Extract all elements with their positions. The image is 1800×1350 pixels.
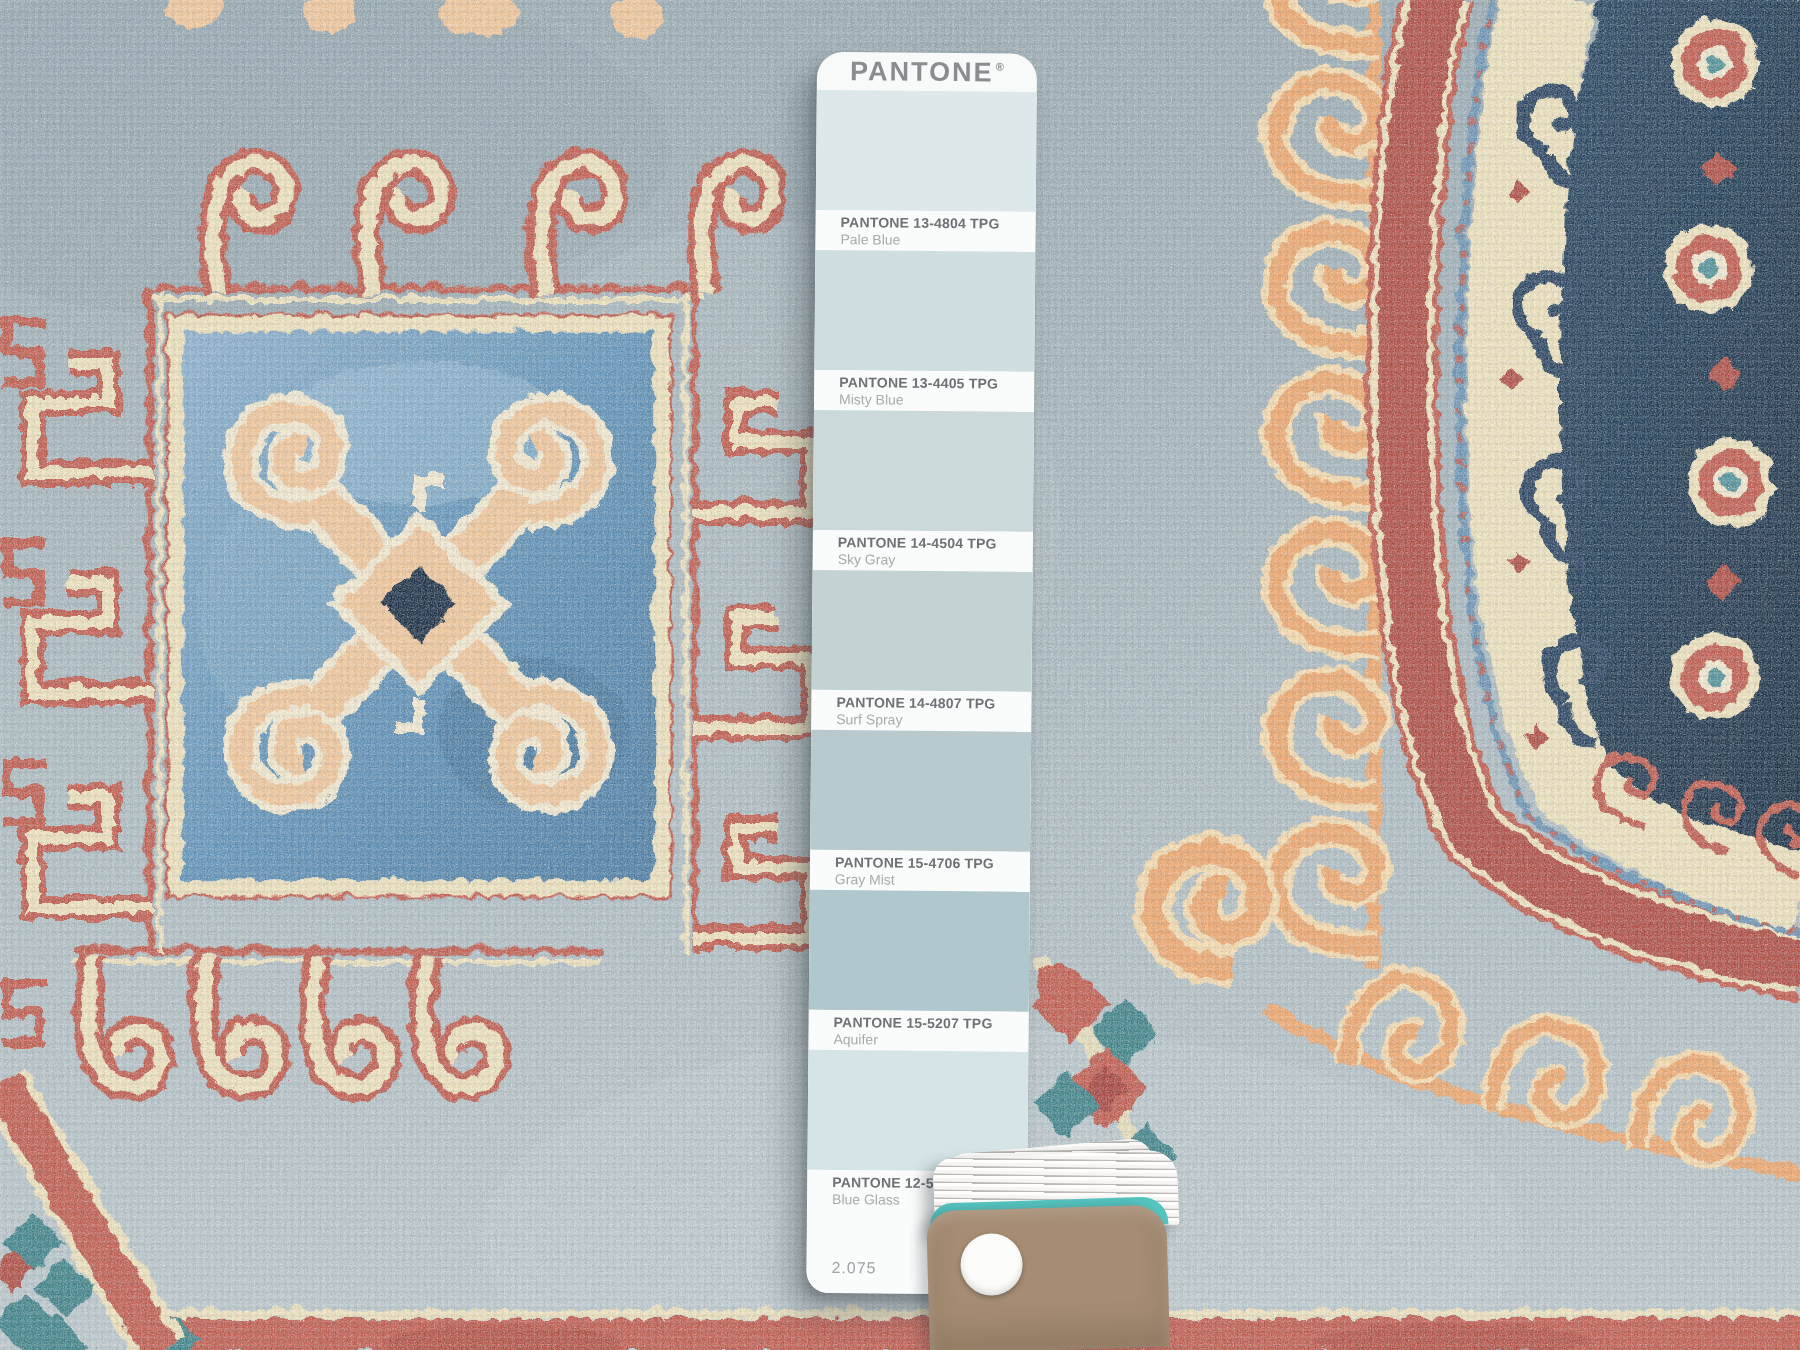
strip-page-number: 2.075 <box>831 1259 876 1277</box>
pantone-color-name: Pale Blue <box>840 231 1035 249</box>
pantone-fan-deck <box>918 1142 1188 1350</box>
pantone-code: PANTONE 14-4504 TPG <box>838 533 1033 553</box>
registered-trademark-symbol: ® <box>996 60 1004 72</box>
pantone-code: PANTONE 15-4706 TPG <box>835 853 1030 873</box>
pantone-chip-label: PANTONE 15-4706 TPG Gray Mist <box>810 850 1030 892</box>
pantone-chip <box>816 90 1037 212</box>
pantone-chip-label: PANTONE 14-4504 TPG Sky Gray <box>813 530 1033 572</box>
pantone-strip-card: PANTONE® PANTONE 13-4804 TPG Pale Blue P… <box>806 52 1037 1295</box>
pantone-color-name: Sky Gray <box>838 551 1033 569</box>
pantone-chip <box>810 730 1031 852</box>
pantone-chip-label: PANTONE 15-5207 TPG Aquifer <box>808 1010 1028 1052</box>
pantone-chip <box>813 410 1034 532</box>
pantone-chip <box>809 890 1030 1012</box>
pantone-chip <box>812 570 1033 692</box>
pantone-color-name: Aquifer <box>833 1031 1028 1049</box>
pantone-brand-wordmark: PANTONE <box>850 56 994 88</box>
pantone-chip-label: PANTONE 13-4405 TPG Misty Blue <box>814 370 1034 412</box>
pantone-chip <box>814 250 1035 372</box>
deck-back-cover <box>926 1205 1170 1350</box>
pantone-color-name: Gray Mist <box>835 871 1030 889</box>
rug-photo-scene: PANTONE® PANTONE 13-4804 TPG Pale Blue P… <box>0 0 1800 1350</box>
pantone-chip-label: PANTONE 13-4804 TPG Pale Blue <box>815 210 1035 252</box>
pantone-color-name: Surf Spray <box>836 711 1031 729</box>
binding-post-hole <box>960 1233 1024 1297</box>
pantone-chip-label: PANTONE 14-4807 TPG Surf Spray <box>811 690 1031 732</box>
pantone-color-name: Misty Blue <box>839 391 1034 409</box>
pantone-code: PANTONE 13-4405 TPG <box>839 373 1034 393</box>
pantone-code: PANTONE 14-4807 TPG <box>836 693 1031 713</box>
pantone-code: PANTONE 15-5207 TPG <box>834 1013 1029 1033</box>
pantone-strip-header: PANTONE® <box>817 52 1037 92</box>
pantone-code: PANTONE 13-4804 TPG <box>841 213 1036 233</box>
